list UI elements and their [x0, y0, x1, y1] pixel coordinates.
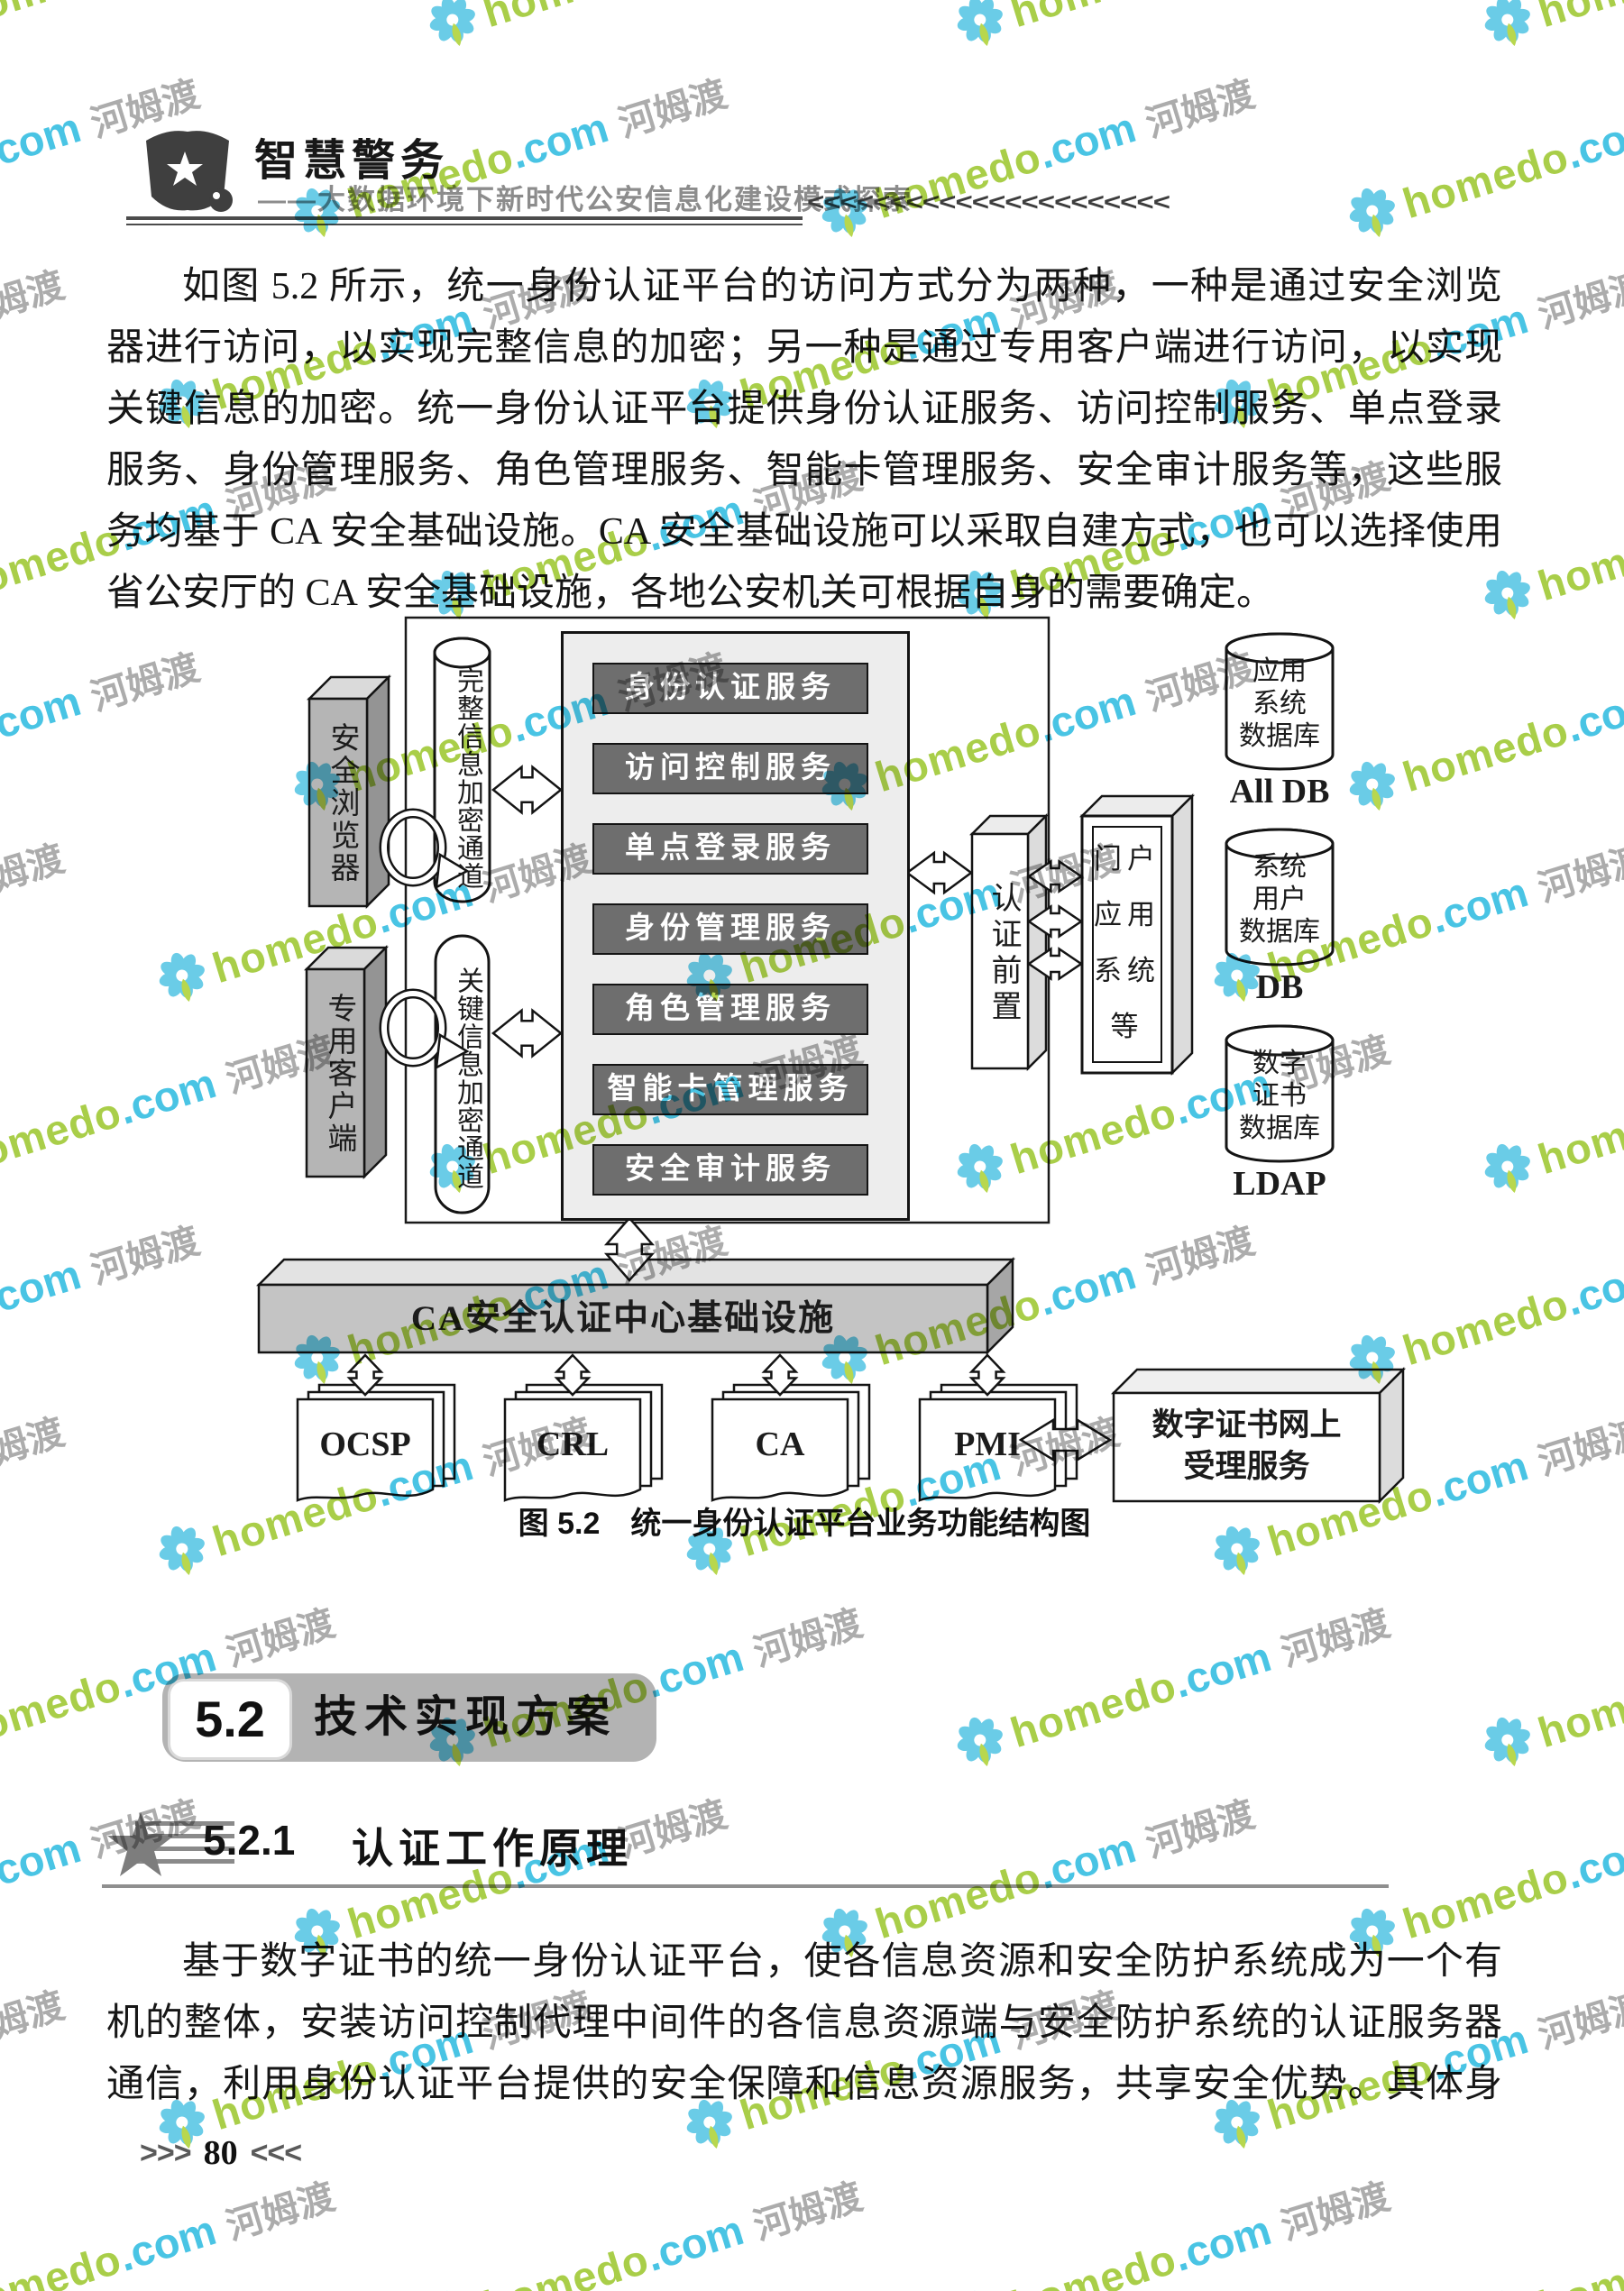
- service-bar: 身份管理服务: [592, 903, 868, 955]
- service-bar: 单点登录服务: [592, 823, 868, 875]
- doc-label-pmi: PMI: [920, 1425, 1055, 1464]
- double-arrow: [493, 1011, 561, 1057]
- doc-label-crl: CRL: [505, 1425, 640, 1464]
- doc-label-ocsp: OCSP: [298, 1425, 433, 1464]
- key-info-channel-label: 关键信息加密通道: [437, 954, 487, 1202]
- app-db-text: 应用 系统 数据库: [1226, 655, 1333, 753]
- star-icon: [105, 1810, 177, 1883]
- portal-row: 门户: [1087, 831, 1167, 887]
- service-bar: 访问控制服务: [592, 743, 868, 794]
- paragraph-line: 务均基于 CA 安全基础设施。CA 安全基础设施可以采取自建方式，也可以选择使用: [106, 501, 1502, 563]
- paragraph-1: 如图 5.2 所示，统一身份认证平台的访问方式分为两种，一种是通过安全浏览 器进…: [106, 256, 1502, 624]
- cert-db-text: 数字 证书 数据库: [1226, 1048, 1333, 1145]
- user-db-text: 系统 用户 数据库: [1226, 851, 1333, 948]
- service-bar: 安全审计服务: [592, 1144, 868, 1196]
- paragraph-line: 机的整体，安装访问控制代理中间件的各信息资源端与安全防护系统的认证服务器: [106, 1993, 1502, 2054]
- paragraph-line: 如图 5.2 所示，统一身份认证平台的访问方式分为两种，一种是通过安全浏览: [106, 256, 1502, 317]
- double-arrow: [493, 767, 561, 813]
- subsection-number: 5.2.1: [203, 1816, 295, 1865]
- paragraph-line: 器进行访问，以实现完整信息的加密；另一种是通过专用客户端进行访问，以实现: [106, 317, 1502, 379]
- paragraph-line: 服务、身份管理服务、角色管理服务、智能卡管理服务、安全审计服务等，这些服: [106, 440, 1502, 501]
- figure-caption: 图 5.2 统一身份认证平台业务功能结构图: [106, 1498, 1502, 1543]
- header-rule-top: [126, 216, 803, 220]
- paragraph-line: 通信，利用身份认证平台提供的安全保障和信息资源服务，共享安全优势。具体身: [106, 2054, 1502, 2115]
- service-bar: 角色管理服务: [592, 984, 868, 1035]
- page-number: 80: [204, 2133, 238, 2173]
- service-bar: 智能卡管理服务: [592, 1064, 868, 1115]
- footer-right-chevrons: <<<: [251, 2136, 302, 2171]
- portal-row: 等: [1087, 999, 1167, 1055]
- cert-db-label: LDAP: [1216, 1164, 1344, 1204]
- dedicated-client-label: 专用客户端: [308, 981, 361, 1166]
- secure-browser-label: 安全浏览器: [311, 710, 363, 895]
- paragraph-2: 基于数字证书的统一身份认证平台，使各信息资源和安全防护系统成为一个有 机的整体，…: [106, 1931, 1502, 2115]
- portal-row: 应用: [1087, 887, 1167, 943]
- portal-row: 系统: [1087, 943, 1167, 999]
- online-cert-service-label: 数字证书网上 受理服务: [1114, 1405, 1380, 1488]
- police-badge-icon: [133, 124, 242, 219]
- section-title: 技术实现方案: [314, 1673, 617, 1762]
- doc-label-ca: CA: [712, 1425, 848, 1464]
- paragraph-line: 基于数字证书的统一身份认证平台，使各信息资源和安全防护系统成为一个有: [106, 1931, 1502, 1993]
- double-arrow: [907, 853, 971, 893]
- subsection-rule: [102, 1884, 1389, 1888]
- section-number: 5.2: [168, 1679, 292, 1760]
- service-bar: 身份认证服务: [592, 663, 868, 714]
- header-chevrons: <<<<<<<<<<<<<<<<<<<<<<: [807, 188, 1170, 215]
- app-db-label: All DB: [1216, 772, 1344, 811]
- subsection-title: 认证工作原理: [352, 1816, 633, 1875]
- footer-left-chevrons: >>>: [140, 2136, 191, 2171]
- paragraph-line: 关键信息的加密。统一身份认证平台提供身份认证服务、访问控制服务、单点登录: [106, 379, 1502, 440]
- full-info-channel-label: 完整信息加密通道: [437, 663, 487, 893]
- auth-front-label: 认证前置: [975, 852, 1025, 1055]
- portal-box-label: 门户 应用 系统 等: [1087, 831, 1167, 1055]
- page-footer: >>> 80 <<<: [140, 2133, 301, 2173]
- user-db-label: DB: [1216, 967, 1344, 1007]
- paragraph-line: 省公安厅的 CA 安全基础设施，各地公安机关可根据自身的需要确定。: [106, 563, 1502, 624]
- header-rule-bottom: [126, 224, 803, 225]
- ca-bar-label: CA安全认证中心基础设施: [259, 1285, 987, 1352]
- book-page: 智慧警务 ——大数据环境下新时代公安信息化建设模式探索 <<<<<<<<<<<<…: [0, 0, 1624, 2291]
